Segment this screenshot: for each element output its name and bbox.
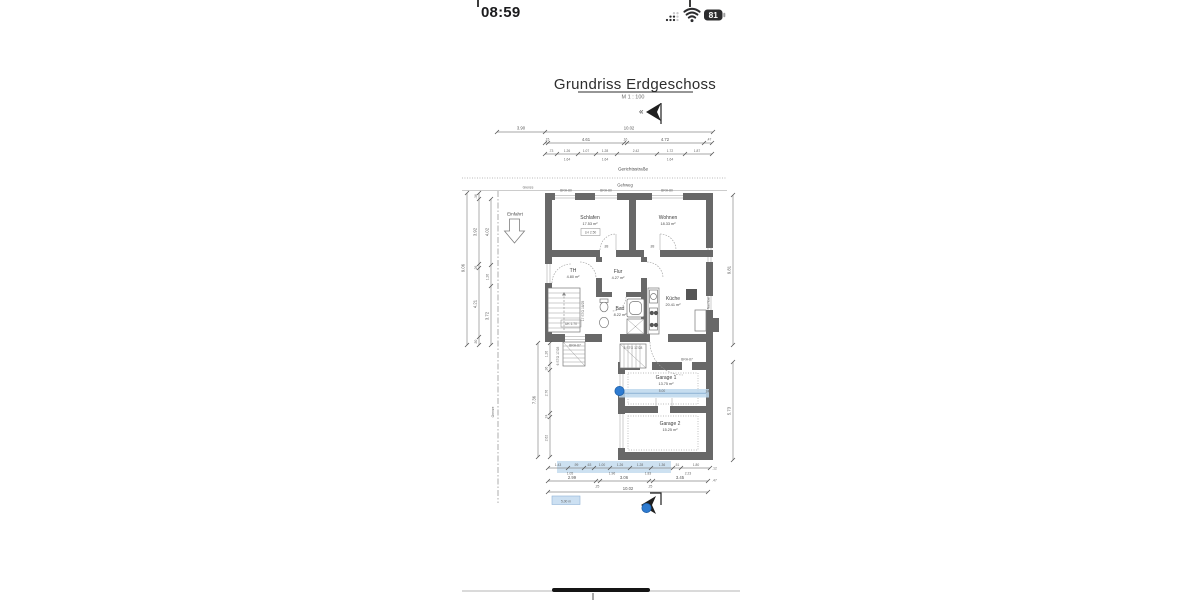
stair-label-main: 17 STG 18/25 bbox=[581, 301, 585, 322]
svg-text:10.02: 10.02 bbox=[623, 486, 634, 491]
svg-text:7.36: 7.36 bbox=[532, 395, 537, 404]
kitchen-fixtures bbox=[648, 288, 706, 334]
svg-text:.50: .50 bbox=[474, 340, 478, 345]
svg-text:4.72: 4.72 bbox=[661, 137, 670, 142]
svg-text:18.33 m²: 18.33 m² bbox=[661, 222, 677, 226]
driveway-entry: Einfahrt bbox=[505, 212, 525, 244]
chimney bbox=[686, 289, 697, 300]
svg-text:13.75 m²: 13.75 m² bbox=[659, 382, 675, 386]
svg-text:.36: .36 bbox=[474, 194, 478, 199]
section-marker-bottom bbox=[641, 493, 661, 514]
svg-text:.16: .16 bbox=[623, 138, 628, 142]
svg-text:.12: .12 bbox=[712, 467, 717, 471]
svg-text:.25: .25 bbox=[595, 485, 600, 489]
mid-stairs: 8 STG 17/28 bbox=[620, 344, 646, 368]
measurement-label-box[interactable]: 5,00 m bbox=[552, 496, 580, 505]
neighbor-label-1: Nachbar bbox=[707, 219, 711, 232]
svg-text:BRH-80: BRH-80 bbox=[560, 189, 572, 193]
measurement-handle-end[interactable] bbox=[642, 503, 651, 512]
svg-text:8.22 m²: 8.22 m² bbox=[614, 313, 628, 317]
room-kueche: Küche bbox=[666, 296, 680, 302]
svg-text:1.64: 1.64 bbox=[564, 158, 571, 162]
stair-label-mid: 8 STG 17/28 bbox=[624, 346, 643, 350]
room-bad: Bad bbox=[616, 306, 625, 312]
svg-text:.63: .63 bbox=[587, 463, 592, 467]
svg-text:1.83: 1.83 bbox=[645, 472, 652, 476]
room-flur: Flur bbox=[614, 269, 623, 275]
svg-text:3.92: 3.92 bbox=[473, 227, 478, 236]
svg-text:9.06: 9.06 bbox=[461, 263, 466, 272]
measurement-handle-start[interactable] bbox=[615, 386, 624, 395]
svg-text:3.45: 3.45 bbox=[676, 475, 685, 480]
svg-text:20.41 m²: 20.41 m² bbox=[666, 303, 682, 307]
svg-text:BRH-80: BRH-80 bbox=[661, 189, 673, 193]
svg-text:3.72: 3.72 bbox=[485, 311, 490, 320]
svg-text:.47: .47 bbox=[707, 138, 712, 142]
svg-text:3.06: 3.06 bbox=[620, 475, 629, 480]
svg-text:.47: .47 bbox=[712, 479, 717, 483]
room-wohnen: Wohnen bbox=[659, 215, 678, 221]
svg-text:1.72: 1.72 bbox=[667, 149, 674, 153]
svg-text:2.76: 2.76 bbox=[545, 390, 549, 397]
room-garage1: Garage 1 bbox=[656, 375, 677, 381]
entry-arrow-icon bbox=[505, 219, 525, 243]
svg-text:4.27 m²: 4.27 m² bbox=[612, 276, 626, 280]
svg-text:BRH-87: BRH-87 bbox=[681, 358, 693, 362]
svg-text:1.96: 1.96 bbox=[609, 472, 616, 476]
svg-text:4.21: 4.21 bbox=[473, 299, 478, 308]
svg-text:3.90: 3.90 bbox=[517, 126, 526, 131]
room-schlafen: Schlafen bbox=[580, 215, 600, 221]
plan-scale: M 1 : 100 bbox=[622, 95, 645, 101]
svg-text:BRH-87: BRH-87 bbox=[569, 344, 581, 348]
svg-text:.99: .99 bbox=[574, 463, 579, 467]
svg-text:4.02: 4.02 bbox=[485, 227, 490, 236]
room-th: TH bbox=[570, 268, 577, 274]
svg-text:1.26: 1.26 bbox=[486, 274, 490, 281]
svg-text:15.25 m²: 15.25 m² bbox=[663, 428, 679, 432]
svg-text:1.87: 1.87 bbox=[694, 149, 701, 153]
svg-text:17.53 m²: 17.53 m² bbox=[583, 222, 599, 226]
svg-text:.88: .88 bbox=[604, 245, 609, 249]
bottom-dimension-chains: 1.43 .99 .63 1.00 1.26 1.28 1.36 .51 1.8… bbox=[546, 461, 717, 494]
plan-title: Grundriss Erdgeschoss bbox=[554, 76, 716, 93]
boundary-label-top: Grenze bbox=[523, 186, 534, 190]
lower-left-dimension-chains: 7.36 1.26 .36 2.76 .24 2.62 bbox=[532, 341, 553, 459]
measurement-annotation[interactable]: 5.00 24 bbox=[615, 386, 710, 397]
svg-text:4.61: 4.61 bbox=[582, 137, 591, 142]
top-dimension-chain: 3.90 10.02 .15 4.61 .16 4.72 .47 .73 1.2… bbox=[495, 126, 715, 162]
svg-text:1.36: 1.36 bbox=[659, 463, 666, 467]
svg-text:10.02: 10.02 bbox=[624, 126, 635, 131]
svg-text:.51: .51 bbox=[675, 463, 680, 467]
left-dimension-chains: 9.06 .36 3.92 .26 4.21 .50 4.02 1.26 3.7… bbox=[461, 191, 494, 347]
svg-text:.25: .25 bbox=[648, 485, 653, 489]
svg-text:LH 2.50: LH 2.50 bbox=[585, 231, 597, 235]
right-dimension-lines: 9.81 5.73 bbox=[727, 193, 736, 462]
floor-plan-document: Grundriss Erdgeschoss M 1 : 100 « 3.90 1… bbox=[0, 0, 1200, 600]
svg-text:.73: .73 bbox=[549, 149, 554, 153]
room-garage2: Garage 2 bbox=[660, 421, 681, 427]
note-uk: UK 1.70 bbox=[565, 322, 577, 326]
svg-text:2.23: 2.23 bbox=[685, 472, 692, 476]
svg-text:2.42: 2.42 bbox=[633, 149, 640, 153]
svg-text:1.26: 1.26 bbox=[617, 463, 624, 467]
sidewalk-label: Gehweg bbox=[617, 183, 633, 188]
svg-text:9.81: 9.81 bbox=[727, 265, 732, 274]
svg-text:BRH-80: BRH-80 bbox=[600, 189, 612, 193]
measurement-value: 5.00 bbox=[659, 389, 666, 393]
svg-text:1.26: 1.26 bbox=[564, 149, 571, 153]
svg-text:«: « bbox=[639, 107, 644, 116]
svg-text:1.26: 1.26 bbox=[545, 351, 549, 358]
section-marker-top: « bbox=[639, 103, 661, 124]
neighbor-label-2: Nachbar bbox=[707, 296, 711, 309]
measurement-wall-tick: 24 bbox=[706, 390, 710, 394]
svg-text:1.28: 1.28 bbox=[637, 463, 644, 467]
svg-text:.26: .26 bbox=[474, 266, 478, 271]
boundary-label-left: Grenze bbox=[491, 406, 495, 417]
svg-text:1.64: 1.64 bbox=[602, 158, 609, 162]
svg-text:1.00: 1.00 bbox=[599, 463, 606, 467]
phone-screen: 08:59 81 Grundriss bbox=[0, 0, 1200, 600]
svg-text:.36: .36 bbox=[545, 367, 549, 372]
svg-text:1.28: 1.28 bbox=[602, 149, 609, 153]
svg-text:.15: .15 bbox=[545, 138, 550, 142]
svg-text:1.07: 1.07 bbox=[583, 149, 590, 153]
measurement-label: 5,00 m bbox=[561, 499, 571, 503]
svg-text:2.62: 2.62 bbox=[545, 435, 549, 442]
driveway-label: Einfahrt bbox=[507, 212, 524, 217]
street-label: Gerichtsstraße bbox=[618, 167, 649, 172]
stair-label-entry: 6 STG 17/28 bbox=[556, 346, 560, 365]
svg-text:4.80 m²: 4.80 m² bbox=[567, 275, 581, 279]
svg-text:5.73: 5.73 bbox=[727, 406, 732, 415]
svg-text:1.43: 1.43 bbox=[555, 463, 562, 467]
svg-text:.88: .88 bbox=[650, 245, 655, 249]
svg-text:2.99: 2.99 bbox=[568, 475, 577, 480]
svg-text:.24: .24 bbox=[545, 415, 549, 420]
svg-text:1.80: 1.80 bbox=[693, 463, 700, 467]
svg-text:1.64: 1.64 bbox=[667, 158, 674, 162]
home-indicator[interactable] bbox=[552, 588, 650, 592]
